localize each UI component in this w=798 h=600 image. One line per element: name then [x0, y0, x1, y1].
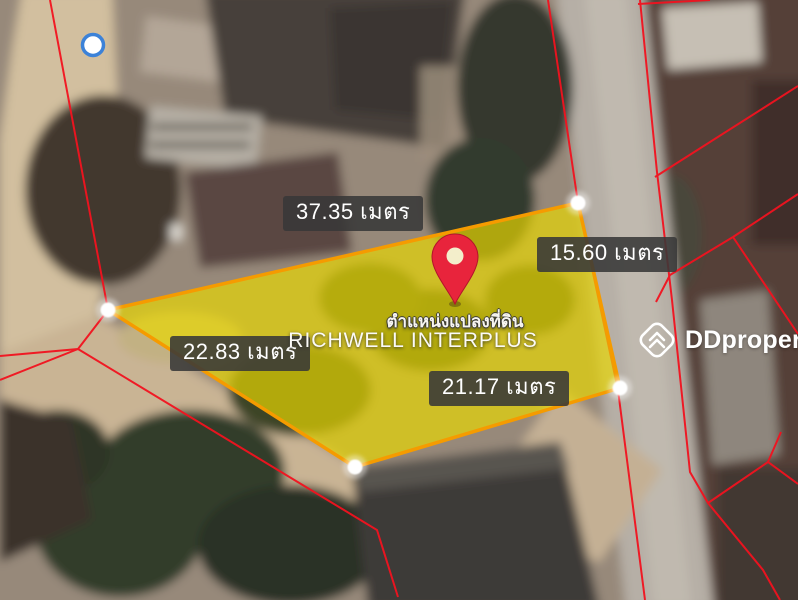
watermark-brand-text: DDproperty: [685, 326, 798, 355]
edge-length-label-right: 15.60 เมตร: [537, 237, 677, 272]
vertex-marker: [566, 191, 590, 215]
watermark: DDproperty: [637, 320, 798, 360]
edge-length-label-bottom: 21.17 เมตร: [429, 371, 569, 406]
property-map-image: 37.35 เมตร 15.60 เมตร 22.83 เมตร 21.17 เ…: [0, 0, 798, 600]
edge-length-label-top: 37.35 เมตร: [283, 196, 423, 231]
blue-ring-marker-icon: [83, 35, 104, 56]
ddproperty-logo-icon: [637, 320, 677, 360]
satellite-map-canvas: [0, 0, 798, 600]
plot-caption-company: RICHWELL INTERPLUS: [288, 329, 537, 353]
vertex-marker: [343, 455, 367, 479]
vertex-marker: [608, 376, 632, 400]
vertex-marker: [96, 298, 120, 322]
